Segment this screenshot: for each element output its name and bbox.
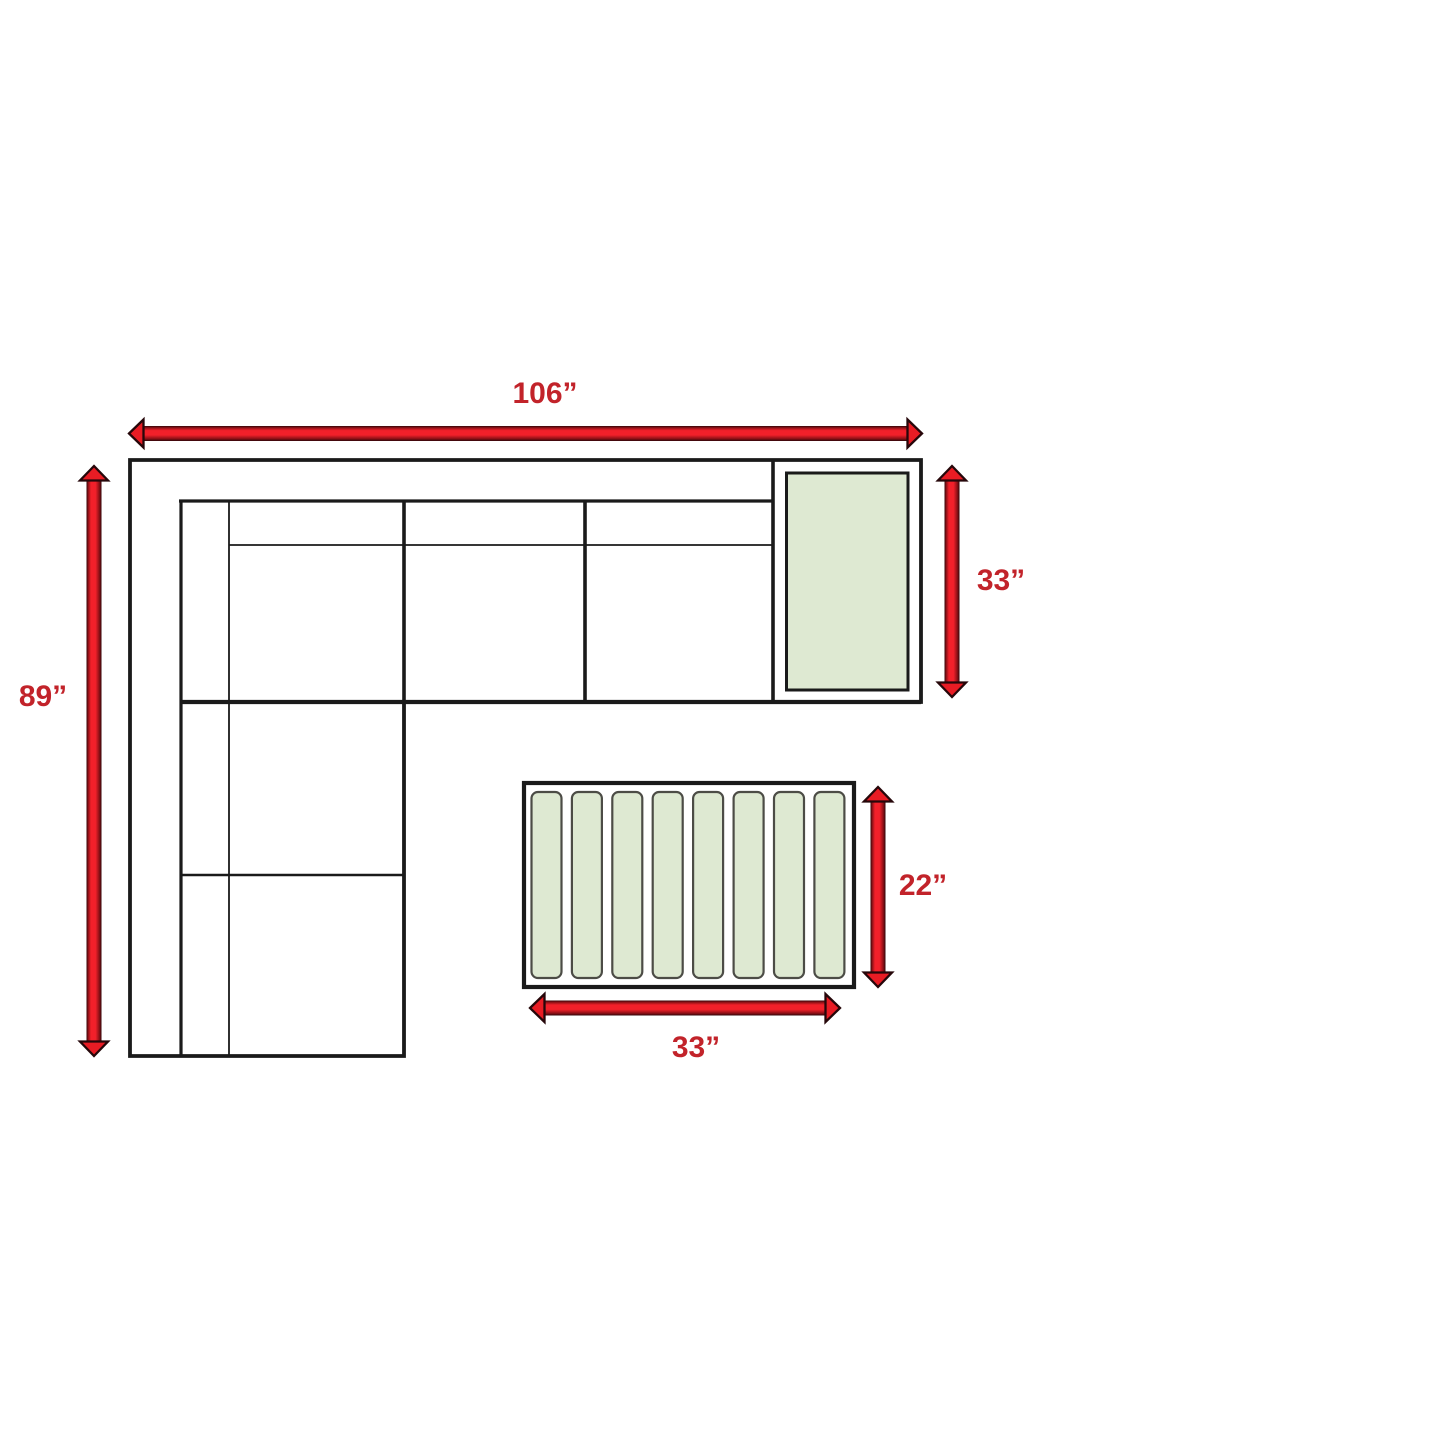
svg-text:22”: 22” (899, 869, 947, 902)
svg-text:89”: 89” (19, 680, 67, 713)
svg-text:106”: 106” (512, 377, 577, 410)
svg-text:33”: 33” (977, 564, 1025, 597)
svg-text:33”: 33” (672, 1031, 720, 1064)
